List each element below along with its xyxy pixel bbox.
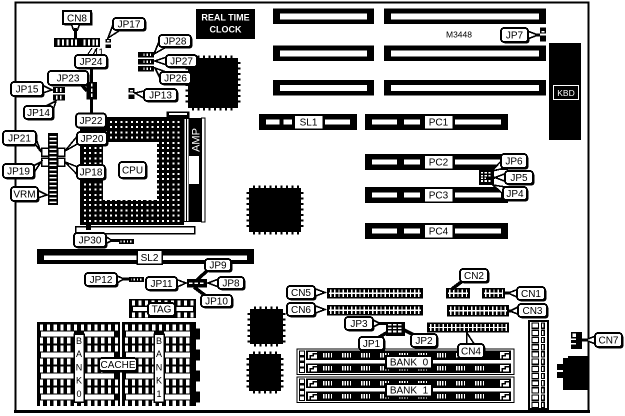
svg-text:JP14: JP14 <box>27 108 50 119</box>
svg-text:JP23: JP23 <box>57 74 80 85</box>
svg-text:CPU: CPU <box>122 166 143 177</box>
svg-text:JP26: JP26 <box>164 74 187 85</box>
svg-text:JP13: JP13 <box>149 91 172 102</box>
svg-text:JP21: JP21 <box>8 134 31 145</box>
svg-text:BANK 1: BANK 1 <box>390 386 429 397</box>
svg-text:CACHE: CACHE <box>100 360 135 371</box>
svg-text:PC2: PC2 <box>429 158 449 169</box>
svg-text:CN6: CN6 <box>291 305 311 316</box>
svg-text:PC1: PC1 <box>429 118 449 129</box>
svg-text:JP7: JP7 <box>506 31 524 42</box>
svg-text:JP17: JP17 <box>118 20 141 31</box>
svg-text:JP3: JP3 <box>350 319 368 330</box>
svg-text:SL1: SL1 <box>300 118 318 129</box>
svg-text:A: A <box>156 349 162 359</box>
svg-text:JP9: JP9 <box>209 261 227 272</box>
svg-text:K: K <box>156 376 162 386</box>
svg-text:CN8: CN8 <box>67 14 87 25</box>
svg-text:JP12: JP12 <box>90 275 113 286</box>
svg-text:A: A <box>76 349 82 359</box>
svg-text:JP1: JP1 <box>363 339 381 350</box>
svg-text:B: B <box>156 336 162 346</box>
svg-text:JP24: JP24 <box>80 57 103 68</box>
svg-text:AMP: AMP <box>191 128 203 152</box>
svg-text:N: N <box>156 362 163 372</box>
svg-text:JP19: JP19 <box>7 167 30 178</box>
svg-text:JP11: JP11 <box>150 279 172 290</box>
svg-text:BANK 0: BANK 0 <box>390 358 429 369</box>
svg-text:SL2: SL2 <box>141 253 159 264</box>
svg-text:CN5: CN5 <box>291 288 311 299</box>
svg-text:N: N <box>76 362 83 372</box>
svg-text:K: K <box>76 376 82 386</box>
svg-text:REAL TIME: REAL TIME <box>201 13 249 23</box>
svg-text:CN1: CN1 <box>521 289 541 300</box>
svg-text:CN2: CN2 <box>464 271 484 282</box>
svg-text:JP10: JP10 <box>205 297 228 308</box>
svg-text:PC3: PC3 <box>429 191 449 202</box>
svg-text:0: 0 <box>76 389 81 399</box>
svg-text:JP8: JP8 <box>222 279 240 290</box>
svg-text:VRM: VRM <box>13 190 35 201</box>
svg-text:M3448: M3448 <box>446 30 472 40</box>
svg-text:KBD: KBD <box>557 88 574 98</box>
svg-text:JP22: JP22 <box>80 116 103 127</box>
svg-text:JP6: JP6 <box>505 157 523 168</box>
svg-text:1: 1 <box>156 389 161 399</box>
svg-text:JP18: JP18 <box>80 168 103 179</box>
svg-text:TAG: TAG <box>152 305 172 316</box>
svg-text:JP15: JP15 <box>16 85 39 96</box>
svg-text:JP30: JP30 <box>79 236 102 247</box>
svg-text:CN4: CN4 <box>461 347 481 358</box>
svg-text:JP5: JP5 <box>510 173 528 184</box>
svg-text:JP4: JP4 <box>506 189 524 200</box>
svg-text:PC4: PC4 <box>429 227 449 238</box>
svg-text:B: B <box>76 336 82 346</box>
svg-text:JP2: JP2 <box>415 336 433 347</box>
svg-text:JP27: JP27 <box>170 57 193 68</box>
svg-text:CN3: CN3 <box>522 306 542 317</box>
svg-text:CN7: CN7 <box>598 336 618 347</box>
svg-text:JP20: JP20 <box>81 134 104 145</box>
svg-text:CLOCK: CLOCK <box>210 25 242 35</box>
svg-text:JP28: JP28 <box>164 37 187 48</box>
